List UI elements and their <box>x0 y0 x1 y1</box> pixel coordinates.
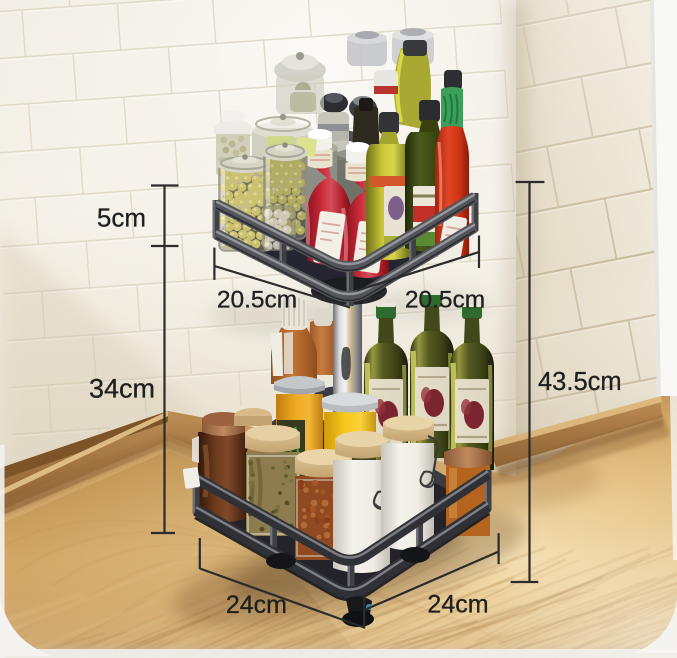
svg-text:5cm: 5cm <box>97 203 146 233</box>
svg-text:24cm: 24cm <box>427 591 488 619</box>
svg-text:34cm: 34cm <box>89 374 155 404</box>
svg-text:20.5cm: 20.5cm <box>217 287 297 314</box>
svg-text:43.5cm: 43.5cm <box>538 368 622 396</box>
svg-text:20.5cm: 20.5cm <box>405 287 485 314</box>
svg-text:24cm: 24cm <box>226 591 287 619</box>
